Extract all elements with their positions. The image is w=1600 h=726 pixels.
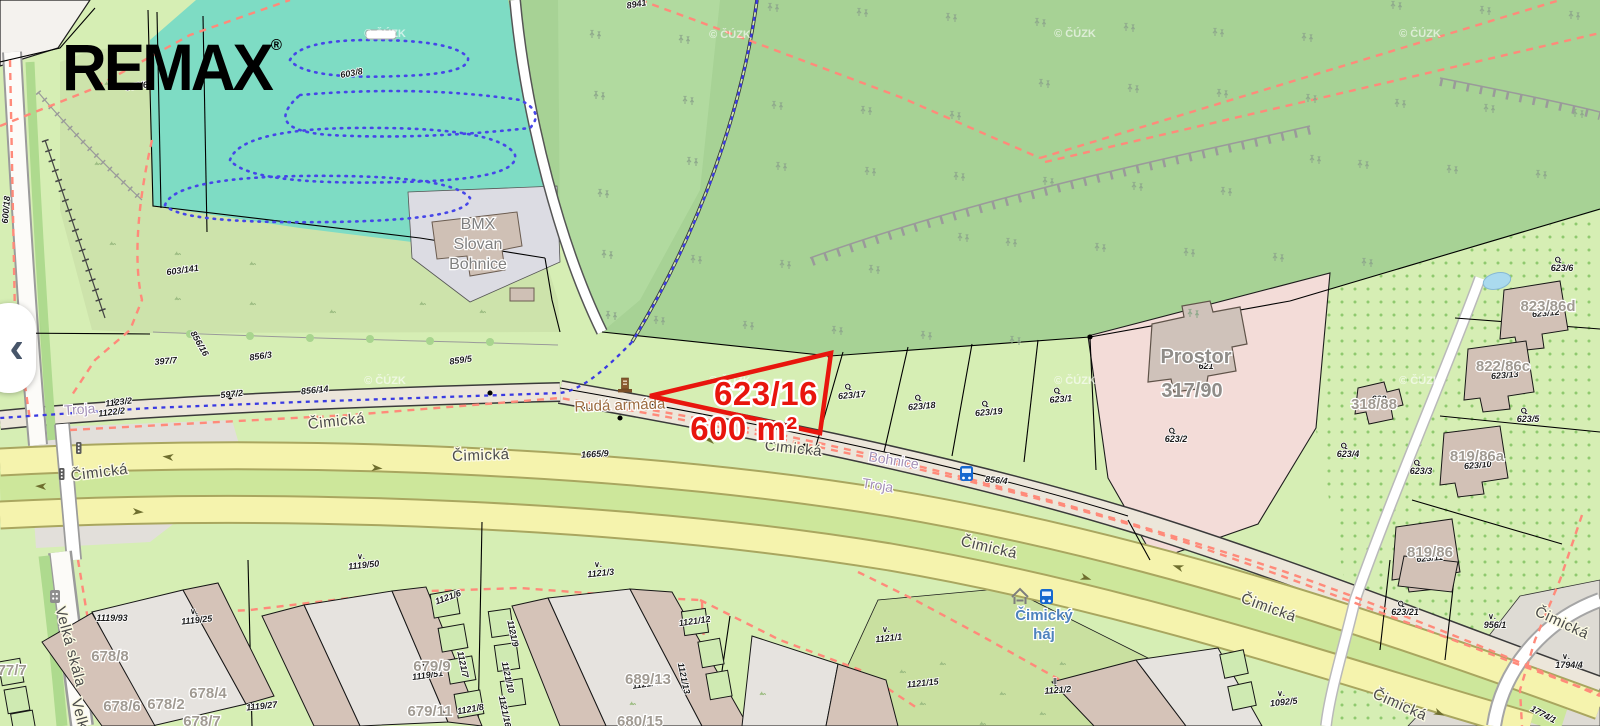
- highlight-parcel-area: 600 m²: [690, 410, 798, 447]
- attribution-text: © ČÚZK: [1054, 27, 1096, 40]
- attribution-text: © ČÚZK: [364, 27, 406, 40]
- map-view: 8941952/6603/8603/141600/18397/7856/1685…: [0, 0, 1600, 726]
- bus-stop-icon: [1040, 589, 1053, 604]
- remax-logo: REMAX®: [62, 38, 282, 98]
- map-label: Čimická: [452, 446, 510, 465]
- map-label: 623/3: [1410, 466, 1433, 476]
- map-label: 819/86: [1407, 544, 1453, 561]
- landuse-symbol: ∨.: [1488, 612, 1496, 621]
- map-label: háj: [1033, 626, 1055, 643]
- landuse-symbol: ∨.: [1562, 652, 1570, 661]
- landuse-symbol: ∨.: [1277, 689, 1285, 698]
- map-label: 819/86a: [1450, 448, 1505, 465]
- attribution-text: © ČÚZK: [709, 28, 751, 41]
- map-label: 623/2: [1165, 434, 1188, 444]
- landuse-symbol: ∨.: [594, 560, 602, 569]
- map-label: 623/5: [1517, 414, 1541, 424]
- landuse-symbol: ∨.: [357, 552, 365, 561]
- map-label: 1121/2: [1044, 684, 1071, 696]
- traffic-light-icon: [76, 442, 82, 454]
- map-label: 623/21: [1391, 607, 1419, 617]
- chevron-left-icon: ‹: [9, 326, 24, 370]
- attribution-text: © ČÚZK: [1054, 374, 1096, 387]
- attribution-text: © ČÚZK: [1399, 374, 1441, 387]
- map-label: 678/2: [147, 696, 185, 713]
- highlight-parcel-number: 623/16: [714, 375, 818, 412]
- traffic-light-icon: [59, 468, 65, 480]
- landuse-symbol: ∨.: [190, 607, 198, 616]
- map-label: 677/7: [0, 662, 27, 679]
- map-label: 680/15: [617, 713, 663, 726]
- map-label: 397/7: [154, 355, 178, 367]
- map-label: 822/86c: [1476, 358, 1530, 375]
- map-label: Troja: [63, 400, 96, 418]
- attribution-text: © ČÚZK: [1399, 27, 1441, 40]
- map-label: 823/86d: [1520, 298, 1575, 315]
- map-label: Bohnice: [449, 256, 507, 273]
- map-label: 623/6: [1551, 263, 1575, 273]
- map-label: Prostor: [1160, 346, 1231, 368]
- attribution-text: © ČÚZK: [364, 374, 406, 387]
- map-label: 623/1: [1049, 393, 1072, 405]
- map-label: 1794/4: [1555, 660, 1583, 670]
- landuse-symbol: ∨.: [882, 625, 890, 634]
- map-canvas[interactable]: 8941952/6603/8603/141600/18397/7856/1685…: [0, 0, 1600, 726]
- map-label: 318/88: [1351, 396, 1397, 413]
- back-button[interactable]: ‹: [0, 303, 36, 393]
- map-label: Slovan: [454, 236, 503, 253]
- map-label: 679/11: [407, 703, 452, 720]
- map-label: BMX: [461, 216, 496, 233]
- map-label: 956/1: [1484, 620, 1507, 630]
- map-label: 1665/9: [581, 448, 609, 459]
- map-label: 678/4: [189, 685, 227, 702]
- map-label: 678/7: [183, 713, 221, 726]
- map-label: 623/4: [1337, 449, 1360, 459]
- map-label: 317/90: [1161, 380, 1222, 402]
- landuse-symbol: ‖: [1053, 677, 1057, 686]
- registered-mark: ®: [271, 36, 282, 54]
- map-label: 1119/93: [96, 613, 127, 623]
- map-label: Čimický: [1015, 606, 1073, 624]
- map-label: 678/6: [103, 698, 141, 715]
- map-label: 678/8: [91, 648, 129, 665]
- map-label: 679/9: [413, 658, 451, 675]
- tram-stop-icon: [50, 590, 60, 603]
- map-label: 689/13: [625, 671, 671, 688]
- bus-stop-icon: [960, 466, 973, 481]
